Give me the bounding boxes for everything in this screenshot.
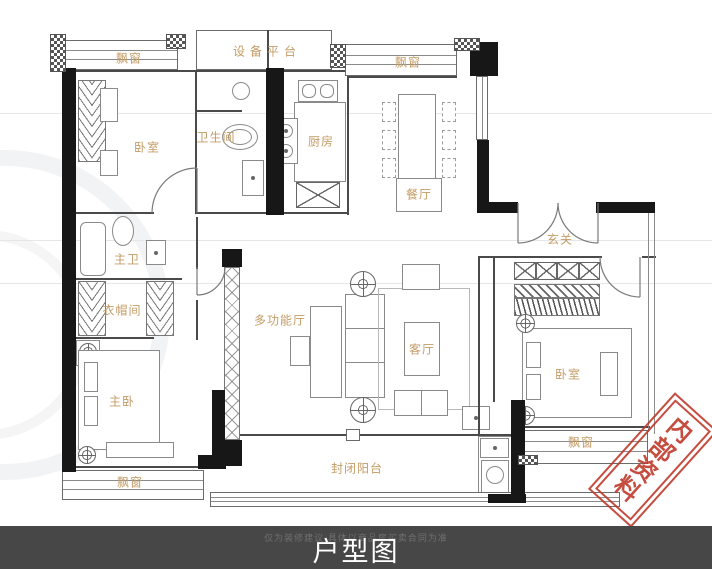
room-label-master-bath: 主卫 (114, 251, 140, 268)
room-label-bay-window: 飘窗 (117, 474, 143, 491)
room-label-master-bedroom: 主卧 (109, 393, 135, 410)
caption-bar: 仅为装修建议 具体以商品房买卖合同为准 户型图 (0, 526, 712, 569)
room-label-bay-window: 飘窗 (116, 50, 142, 67)
room-label-balcony: 封闭阳台 (331, 460, 383, 477)
room-label-living: 客厅 (409, 341, 435, 358)
room-label-bedroom: 卧室 (134, 139, 160, 156)
room-label-bathroom: 卫生间 (196, 129, 235, 146)
floor-plan-page: 飘窗 设备平台 飘窗 卧室 卫生间 厨房 餐厅 玄关 主卫 衣帽间 多功能厅 客… (0, 0, 712, 569)
room-label-entry: 玄关 (547, 231, 573, 248)
room-label-equipment-platform: 设备平台 (233, 43, 301, 60)
room-label-dining: 餐厅 (406, 186, 432, 203)
room-label-bay-window: 飘窗 (568, 434, 594, 451)
room-label-cloakroom: 衣帽间 (102, 302, 141, 319)
room-label-kitchen: 厨房 (308, 133, 334, 150)
room-label-bedroom: 卧室 (555, 366, 581, 383)
page-title: 户型图 (0, 530, 712, 569)
room-label-bay-window: 飘窗 (395, 54, 421, 71)
room-label-multi-hall: 多功能厅 (254, 312, 306, 329)
